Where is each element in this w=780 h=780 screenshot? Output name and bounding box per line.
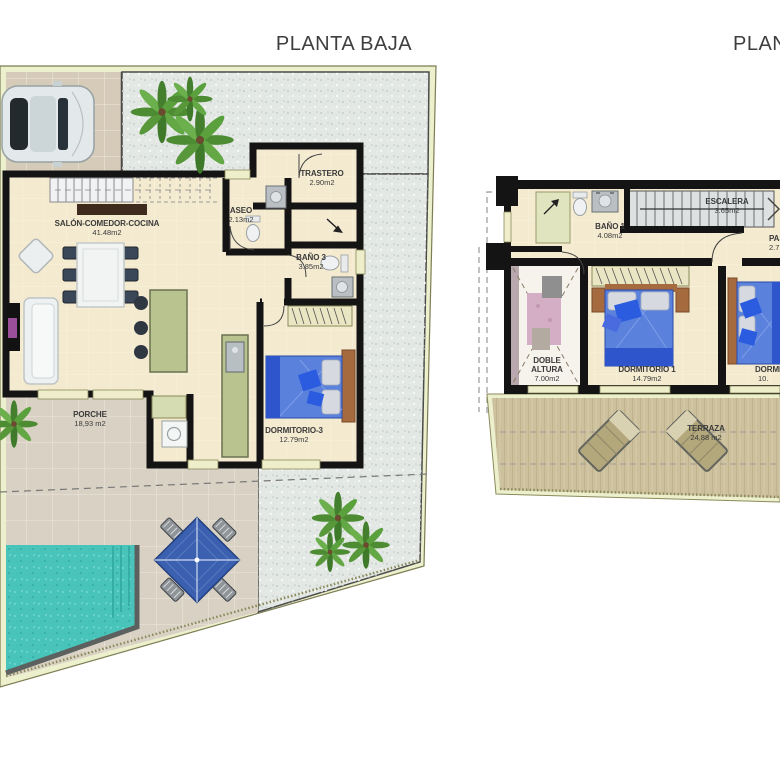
stool xyxy=(134,321,148,335)
room-label-aseo: ASEO 2.13m2 xyxy=(216,206,266,224)
room-label-bano1: BAÑO 1 4.08m2 xyxy=(585,222,635,240)
car-roof xyxy=(30,96,56,152)
wardrobe-dorm3 xyxy=(288,306,352,326)
nightstand xyxy=(676,288,689,312)
room-label-porche: PORCHE 18,93 m2 xyxy=(60,410,120,428)
kitchen-sink xyxy=(226,342,244,372)
parasol-table xyxy=(155,517,240,602)
room-label-dormitorio2: DORMITORIO 2 10. xyxy=(755,365,780,383)
wardrobe xyxy=(592,266,689,286)
stool xyxy=(134,296,148,310)
sofa xyxy=(24,298,58,384)
title-planta-alta: PLANTA ALTA xyxy=(733,33,780,56)
title-planta-baja: PLANTA BAJA xyxy=(276,33,412,56)
car-rear-window xyxy=(10,98,28,150)
room-label-escalera: ESCALERA 3.65m2 xyxy=(692,197,762,215)
toilet xyxy=(247,225,260,242)
room-label-doble-altura: DOBLE ALTURA 7.00m2 xyxy=(523,356,571,383)
bed-dormitorio-3 xyxy=(266,350,355,422)
car xyxy=(2,81,94,167)
headboard xyxy=(728,278,737,364)
dining-table-set xyxy=(63,243,138,307)
toilet xyxy=(574,199,587,216)
room-label-terraza: TERRAZA 24,88 m2 xyxy=(671,424,741,442)
washer xyxy=(162,421,187,447)
kitchen-counter xyxy=(222,335,248,457)
room-label-bano3: BAÑO 3 3.85m2 xyxy=(286,253,336,271)
dormitorio2-furniture xyxy=(728,278,780,364)
plans-drawing xyxy=(0,0,780,780)
planta-baja-plan xyxy=(0,66,436,687)
shower xyxy=(536,192,570,243)
room-label-dormitorio1: DORMITORIO 1 14.79m2 xyxy=(607,365,687,383)
terraza-deck xyxy=(487,394,780,502)
room-label-salon: SALÓN-COMEDOR-COCINA 41.48m2 xyxy=(52,219,162,237)
floor-plan-sheet: PLANTA BAJA PLANTA ALTA SALÓN-COMEDOR-CO… xyxy=(0,0,780,780)
tv-unit xyxy=(6,303,20,351)
room-label-trastero: TRASTERO 2.90m2 xyxy=(287,169,357,187)
dining-table xyxy=(77,243,124,307)
sideboard xyxy=(77,204,147,215)
room-label-pasillo: PASILLO 2.7 xyxy=(769,234,780,252)
stool xyxy=(134,345,148,359)
room-label-dormitorio3: DORMITORIO-3 12.79m2 xyxy=(254,426,334,444)
nightstand xyxy=(592,288,605,312)
car-windshield xyxy=(58,98,68,150)
